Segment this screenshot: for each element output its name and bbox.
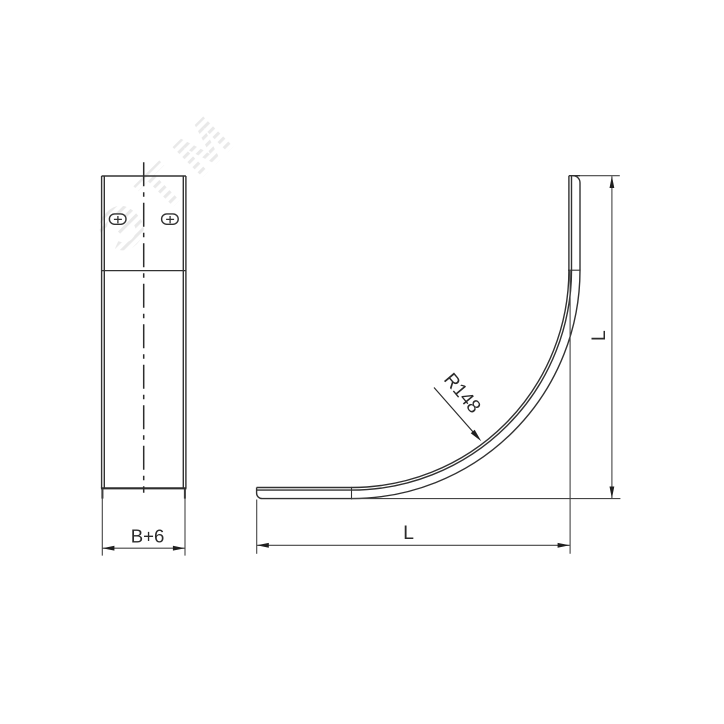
svg-text:L: L (588, 330, 610, 341)
svg-text:L: L (403, 522, 414, 544)
svg-text:B+6: B+6 (131, 525, 165, 546)
